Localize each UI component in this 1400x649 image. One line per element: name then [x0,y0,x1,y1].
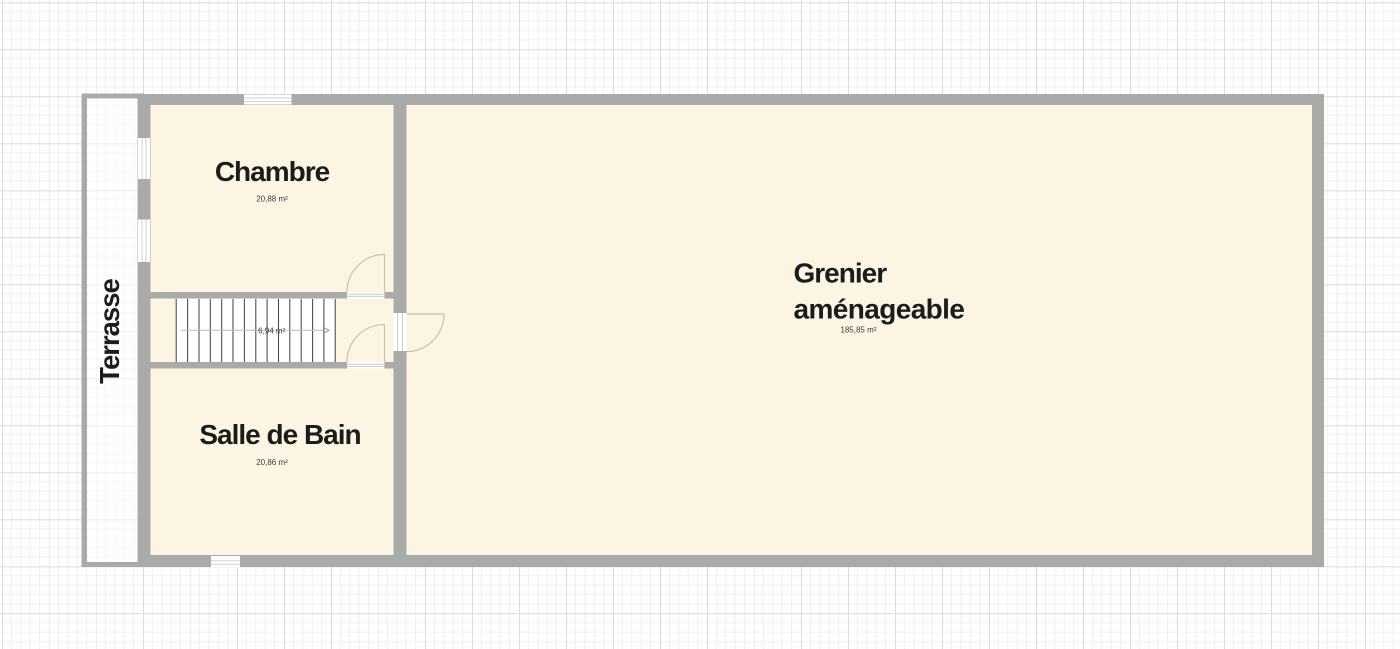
svg-text:185,85 m²: 185,85 m² [840,326,876,335]
svg-text:aménageable: aménageable [794,293,965,324]
svg-text:Terrasse: Terrasse [94,278,125,383]
svg-text:Chambre: Chambre [215,156,330,187]
svg-text:6,94 m²: 6,94 m² [258,327,285,336]
svg-text:Salle de Bain: Salle de Bain [199,419,360,450]
svg-text:20,86 m²: 20,86 m² [256,458,288,467]
svg-text:20,88 m²: 20,88 m² [256,195,288,204]
svg-text:Grenier: Grenier [794,257,888,288]
